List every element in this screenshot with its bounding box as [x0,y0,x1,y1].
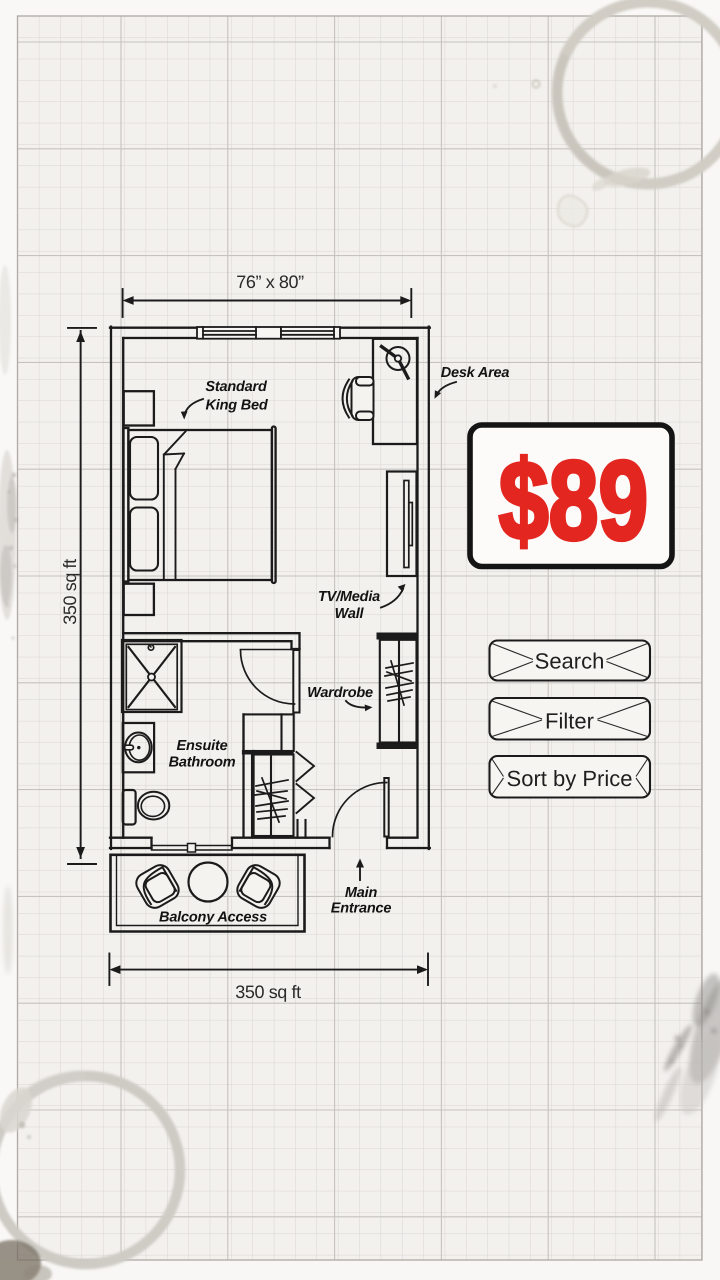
svg-text:TV/Media: TV/Media [318,589,380,605]
svg-text:Bathroom: Bathroom [169,755,236,771]
svg-text:Balcony Access: Balcony Access [159,910,267,926]
svg-text:Entrance: Entrance [331,901,392,917]
svg-text:76” x 80”: 76” x 80” [236,272,304,292]
svg-text:$89: $89 [499,438,649,563]
svg-text:350 sq ft: 350 sq ft [60,559,80,625]
svg-text:350 sq ft: 350 sq ft [235,982,301,1002]
svg-text:Sort by Price: Sort by Price [507,766,633,791]
svg-text:Filter: Filter [545,709,594,734]
svg-text:Main: Main [345,885,378,901]
svg-text:Wall: Wall [335,606,365,622]
svg-text:Desk Area: Desk Area [441,365,510,381]
svg-text:Ensuite: Ensuite [177,738,228,754]
svg-text:Search: Search [535,649,605,674]
svg-text:Standard: Standard [205,379,268,395]
svg-text:King Bed: King Bed [205,398,268,414]
svg-text:Wardrobe: Wardrobe [307,685,373,701]
